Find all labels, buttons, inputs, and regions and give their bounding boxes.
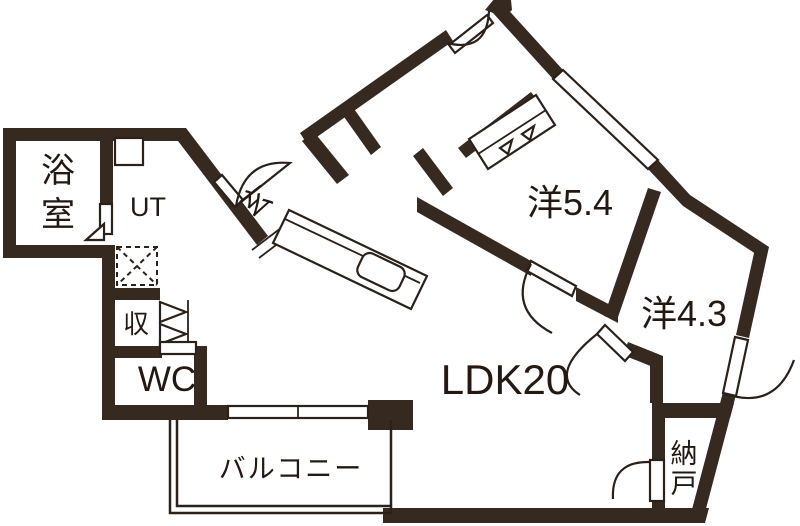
floorplan-svg: 浴 室 UT 玄 収 WC 洋5.4 洋4.3 LDK20 バルコニー 納 戸: [0, 0, 800, 526]
washing-machine-space: [117, 247, 157, 285]
wall-topright-1: [493, 4, 563, 79]
room-label-bathroom-char1: 浴: [41, 152, 75, 190]
room-label-balcony: バルコニー: [219, 454, 363, 484]
room-label-storeroom-char2: 戸: [671, 469, 698, 499]
door-yo43-exterior: [723, 337, 794, 398]
wc-door-panel: [160, 342, 196, 354]
wall-storage-top: [102, 288, 160, 300]
door-ldk-yo43: [567, 325, 633, 395]
kitchen-sink: [355, 250, 408, 293]
wall-bath-right: [100, 141, 113, 206]
door-nando: [613, 460, 664, 501]
door-ldk-yo54: [523, 261, 576, 333]
wall-left: [3, 128, 16, 258]
room-label-western-small: 洋4.3: [641, 293, 727, 334]
kitchen-counter: [273, 210, 427, 309]
window-yo54: [553, 70, 658, 169]
wall-bath-bottom: [3, 245, 115, 258]
wall-storage-wc-divider: [102, 346, 162, 358]
storage-bifold-icon: [160, 300, 188, 346]
wall-stub-ldk: [413, 148, 453, 196]
wall-stub-corridor: [342, 106, 381, 155]
wall-ldk-yo54-a: [417, 197, 531, 276]
room-label-bathroom-char2: 室: [41, 196, 75, 234]
room-label-utility: UT: [130, 192, 166, 222]
floorplan-page: 浴 室 UT 玄 収 WC 洋5.4 洋4.3 LDK20 バルコニー 納 戸: [0, 0, 800, 526]
closet-yo54: [469, 95, 555, 169]
wall-yo43-corner: [650, 356, 663, 403]
wall-nando-top: [652, 403, 734, 418]
room-label-storeroom-char1: 納: [671, 439, 698, 469]
wall-diagonal-main: [300, 30, 453, 144]
wall-topright-2: [648, 160, 769, 258]
door-yo54-top: [447, 11, 493, 53]
room-label-storage: 収: [123, 309, 149, 339]
room-label-toilet: WC: [138, 360, 196, 399]
pipe-space-niche: [115, 138, 143, 165]
bathroom-door-icon: [86, 204, 112, 240]
balcony-window: [228, 406, 368, 418]
wall-wc-bottom: [102, 405, 228, 420]
wall-right-yo43: [736, 244, 769, 338]
wall-nando-left-lower: [652, 500, 665, 520]
wall-nando-left-upper: [652, 418, 665, 462]
room-label-western-large: 洋5.4: [527, 182, 613, 223]
room-label-ldk: LDK20: [441, 356, 569, 403]
wall-left-lower: [102, 252, 115, 420]
